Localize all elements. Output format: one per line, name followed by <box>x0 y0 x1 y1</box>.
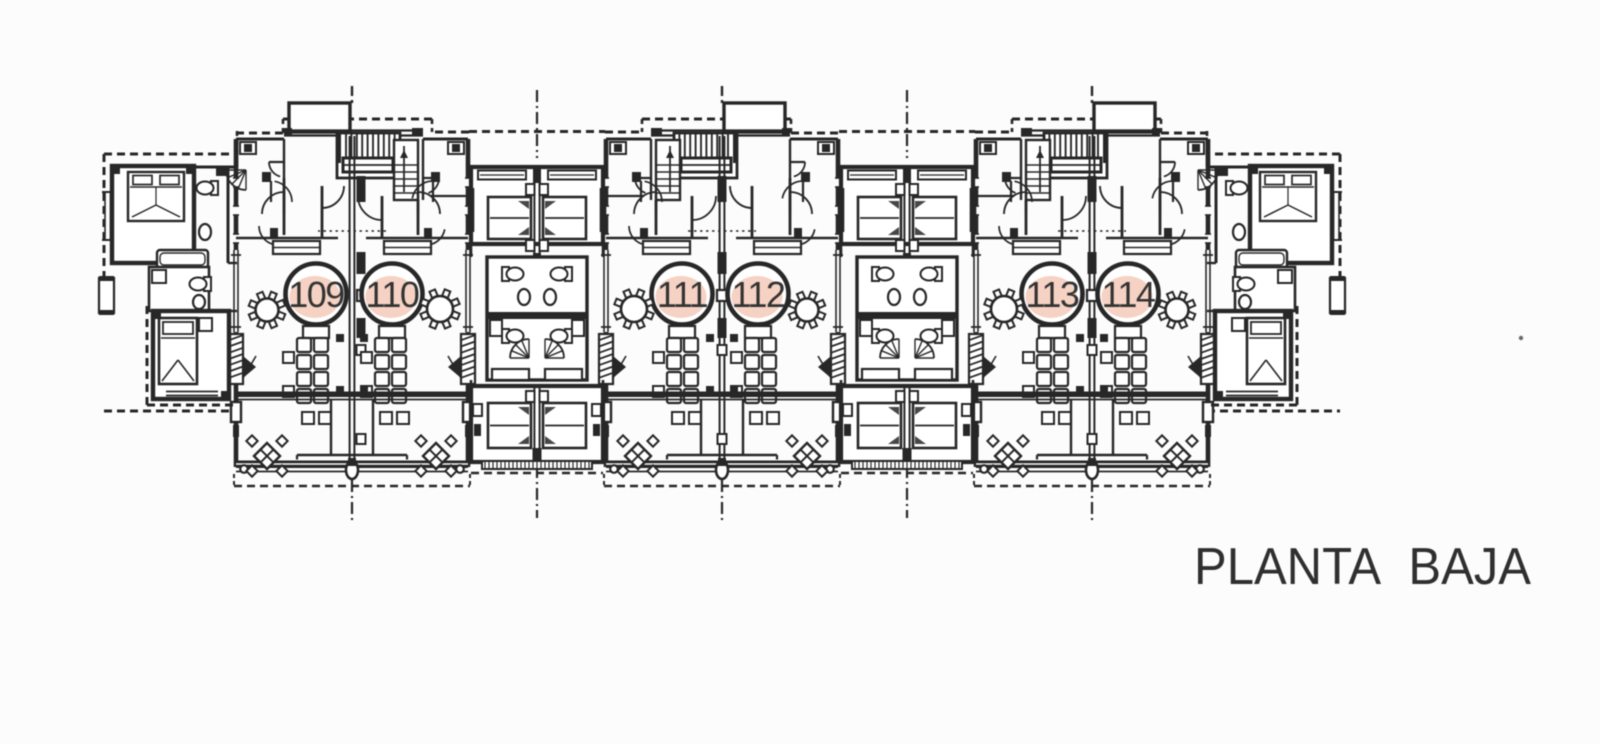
svg-text:113: 113 <box>1026 274 1079 315</box>
svg-text:111: 111 <box>657 274 708 315</box>
svg-text:PLANTA BAJA: PLANTA BAJA <box>1194 538 1531 596</box>
svg-text:112: 112 <box>732 274 785 315</box>
svg-text:110: 110 <box>366 274 419 315</box>
svg-text:114: 114 <box>1102 274 1155 315</box>
svg-text:109: 109 <box>288 274 344 315</box>
